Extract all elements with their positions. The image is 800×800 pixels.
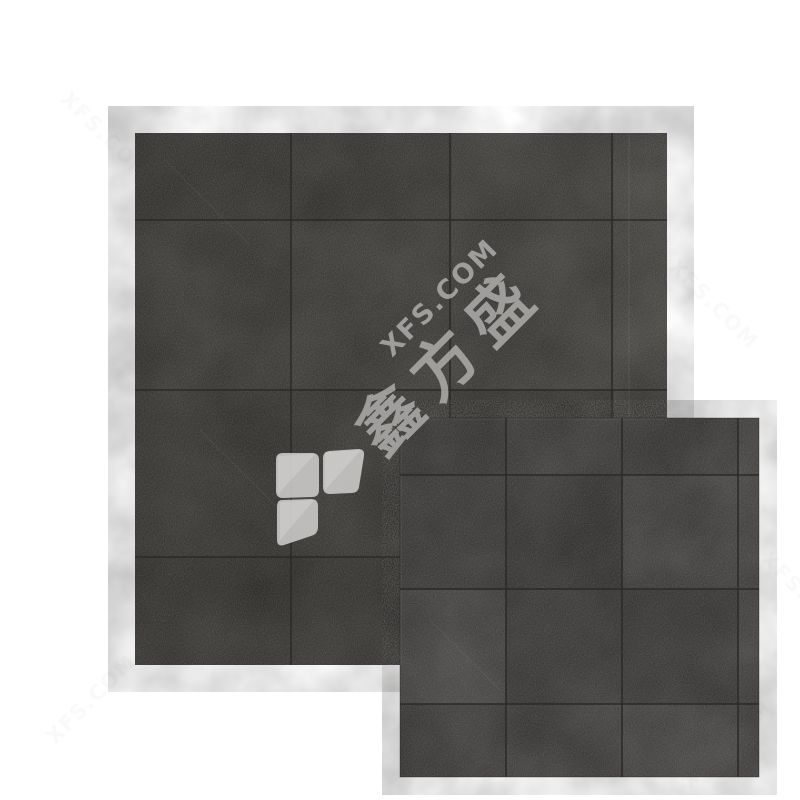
product-image-canvas: XFS.COM XFS.COM XFS.COM XFS.COM XFS.COM xyxy=(0,0,800,800)
texture-grain-overlay xyxy=(400,418,759,777)
small-tile-swatch xyxy=(400,418,759,777)
tile-product-image: XFS.COM XFS.COM XFS.COM XFS.COM XFS.COM xyxy=(0,0,800,800)
